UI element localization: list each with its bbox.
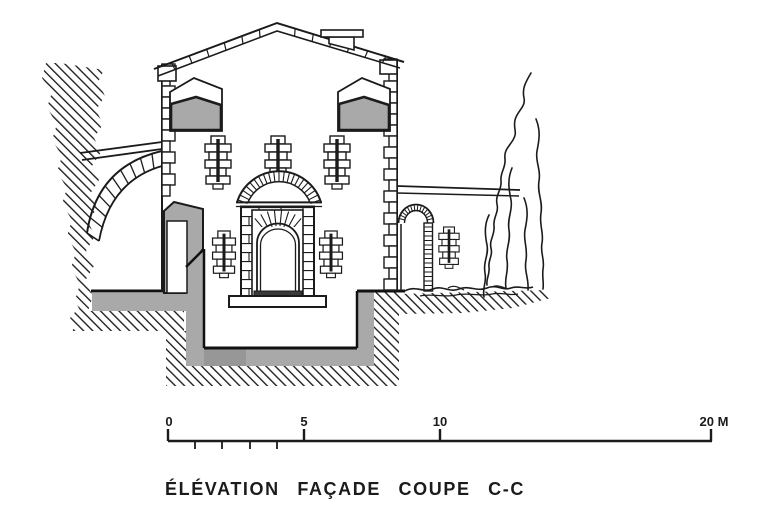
lower-loophole-right — [320, 231, 343, 278]
terrace-slab-poche — [92, 293, 188, 311]
central-portal — [229, 171, 326, 307]
ground-hatch-terrace — [70, 311, 184, 331]
drawing-title: ÉLÉVATION FAÇADE COUPE C-C — [165, 478, 525, 499]
door-base-slab — [229, 296, 326, 307]
paper-background — [0, 0, 768, 512]
basement-floor-dark-patch — [204, 349, 246, 366]
scale-label-10: 10 — [433, 414, 447, 429]
scale-label-20m: 20 M — [700, 414, 729, 429]
left-eave-block — [158, 66, 176, 81]
basement-right-wall-poche — [357, 291, 374, 366]
scale-label-5: 5 — [300, 414, 307, 429]
bridge-doorway-opening — [167, 221, 187, 293]
upper-loophole-right — [324, 136, 350, 189]
scale-label-0: 0 — [165, 414, 172, 429]
chimney-cap — [321, 30, 363, 37]
right-wall-loophole — [439, 227, 459, 268]
lower-loophole-left — [213, 231, 236, 278]
elevation-section-drawing: 0 5 10 20 M ÉLÉVATION FAÇADE COUPE C-C — [0, 0, 768, 512]
upper-loophole-left — [205, 136, 231, 189]
architectural-drawing-sheet: 0 5 10 20 M ÉLÉVATION FAÇADE COUPE C-C — [0, 0, 768, 512]
